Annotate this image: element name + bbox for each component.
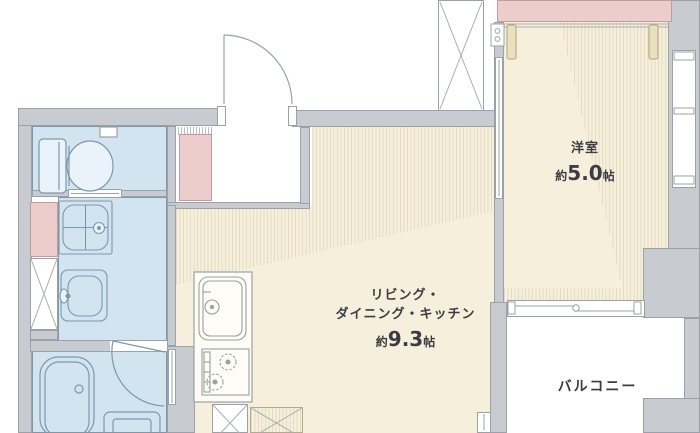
washroom-floor	[58, 197, 167, 342]
western-room-size: 約5.0帖	[505, 159, 665, 188]
wall-washroom-left-piece	[30, 330, 58, 340]
floorplan-canvas: 洋室 約5.0帖 リビング・ ダイニング・キッチン 約9.3帖 バルコニー	[0, 0, 700, 433]
entrance-door-jamb-left	[217, 106, 226, 126]
wall-entrance-bottom	[167, 202, 310, 209]
bathroom-door-opening	[110, 341, 167, 351]
western-room-closet	[497, 0, 672, 22]
refrigerator-space	[212, 404, 248, 433]
wall-washroom-right	[167, 205, 176, 346]
wall-balcony-corner	[643, 398, 700, 433]
balcony-label: バルコニー	[525, 377, 670, 397]
wall-top-left	[18, 108, 223, 126]
ldk-slit-window	[477, 412, 491, 433]
right-wall-window	[672, 50, 696, 188]
washroom-pipe-space	[30, 258, 58, 330]
western-room-label: 洋室 約5.0帖	[505, 140, 665, 188]
pipe-shaft	[438, 0, 484, 111]
ldk-size: 約9.3帖	[318, 325, 493, 354]
balcony-sliding-window	[507, 300, 645, 317]
toilet-sliding-door	[68, 189, 122, 198]
wall-right-step	[643, 248, 700, 318]
ldk-name-line1: リビング・	[318, 287, 493, 306]
toilet-room-floor	[32, 126, 167, 192]
wall-toilet-right	[167, 126, 176, 205]
entrance-door-swing-icon	[224, 35, 292, 104]
washroom-door-opening	[168, 349, 176, 405]
wall-entrance-right	[300, 127, 310, 204]
ldk-name-line2: ダイニング・キッチン	[318, 306, 493, 325]
entrance-door-jamb-right	[288, 106, 297, 126]
bathroom-floor	[32, 350, 167, 433]
ldk-label: リビング・ ダイニング・キッチン 約9.3帖	[318, 287, 493, 354]
entrance-shoe-cabinet	[179, 134, 212, 201]
washroom-storage	[30, 202, 58, 257]
western-room-name: 洋室	[505, 140, 665, 159]
service-space	[250, 407, 303, 433]
wall-balcony-right	[684, 318, 700, 400]
wall-top-mid	[292, 110, 498, 127]
ldk-western-sliding-door	[495, 57, 503, 199]
